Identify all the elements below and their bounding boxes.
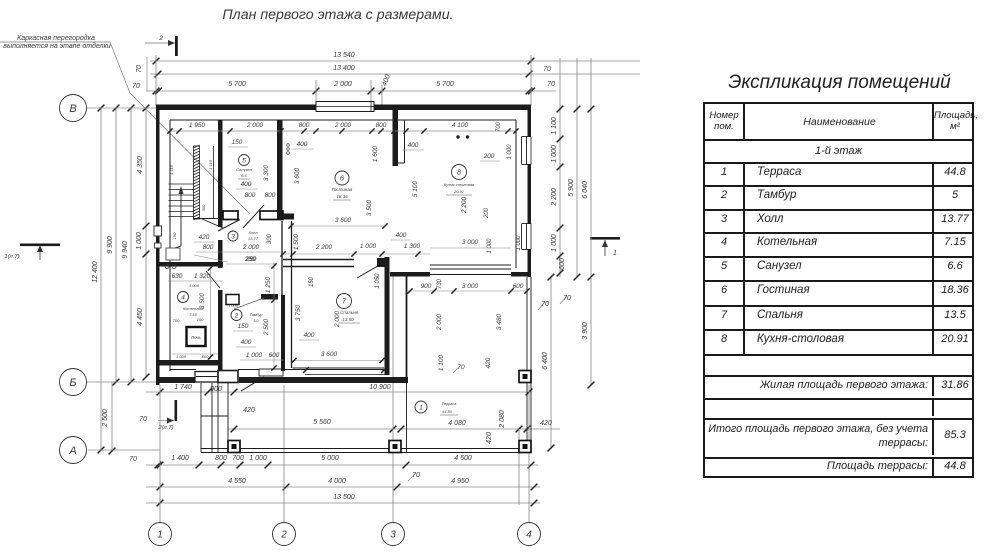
- svg-text:300: 300: [201, 204, 206, 211]
- svg-text:2 000: 2 000: [333, 81, 352, 88]
- svg-text:А: А: [68, 445, 76, 457]
- svg-text:20.91: 20.91: [453, 189, 464, 194]
- svg-text:13 540: 13 540: [333, 52, 355, 59]
- svg-text:2 000: 2 000: [246, 122, 264, 129]
- svg-text:1 000: 1 000: [246, 352, 263, 359]
- svg-text:8: 8: [457, 168, 462, 177]
- svg-text:5 100: 5 100: [412, 180, 419, 197]
- svg-text:4 100: 4 100: [452, 122, 469, 129]
- svg-text:420: 420: [486, 432, 493, 444]
- svg-text:1 250: 1 250: [265, 276, 272, 293]
- svg-text:200: 200: [484, 207, 490, 219]
- svg-text:2: 2: [234, 312, 239, 319]
- svg-text:800: 800: [376, 122, 387, 129]
- svg-text:1 000: 1 000: [551, 234, 558, 252]
- svg-text:1 110: 1 110: [169, 164, 174, 174]
- svg-text:70: 70: [136, 65, 143, 73]
- svg-text:3 000: 3 000: [462, 239, 479, 246]
- svg-text:800: 800: [215, 455, 227, 462]
- svg-text:9 900: 9 900: [107, 236, 114, 254]
- svg-text:1 500: 1 500: [293, 233, 300, 250]
- svg-text:250: 250: [244, 256, 256, 263]
- svg-text:2 200: 2 200: [315, 244, 333, 251]
- svg-text:3 500: 3 500: [366, 199, 373, 216]
- svg-text:2 200: 2 200: [461, 196, 468, 214]
- svg-text:800: 800: [203, 244, 214, 251]
- svg-text:3 000: 3 000: [462, 283, 479, 290]
- svg-text:4: 4: [526, 530, 532, 541]
- svg-text:2 500: 2 500: [102, 409, 109, 428]
- svg-text:Каркасная перегородка: Каркасная перегородка: [17, 34, 95, 42]
- svg-text:1 050: 1 050: [375, 273, 381, 289]
- svg-text:3 600: 3 600: [294, 167, 301, 184]
- svg-text:10 900: 10 900: [369, 384, 391, 391]
- svg-text:4 000: 4 000: [328, 478, 346, 485]
- svg-text:В: В: [69, 103, 76, 115]
- svg-text:Б: Б: [69, 377, 76, 389]
- svg-text:Гостиная: Гостиная: [332, 187, 353, 192]
- svg-text:5 700: 5 700: [228, 81, 246, 88]
- svg-text:70: 70: [547, 81, 555, 88]
- svg-text:2 200: 2 200: [551, 188, 558, 207]
- svg-text:2 000: 2 000: [242, 244, 260, 251]
- svg-text:выполняется на этапе отделки: выполняется на этапе отделки: [3, 42, 111, 50]
- svg-text:420: 420: [243, 407, 255, 414]
- svg-text:2 500: 2 500: [263, 318, 270, 336]
- svg-text:70: 70: [132, 83, 140, 90]
- svg-text:4 500: 4 500: [454, 455, 472, 462]
- svg-text:3 300: 3 300: [263, 164, 270, 181]
- svg-text:13 500: 13 500: [333, 494, 355, 501]
- svg-text:12 400: 12 400: [92, 261, 99, 283]
- svg-text:600: 600: [513, 283, 524, 290]
- svg-text:6 400: 6 400: [542, 352, 549, 370]
- svg-text:4: 4: [181, 294, 185, 301]
- svg-text:3 500: 3 500: [199, 292, 206, 309]
- svg-text:150: 150: [238, 323, 249, 330]
- svg-text:2 000: 2 000: [436, 313, 443, 331]
- svg-text:400: 400: [396, 232, 407, 239]
- svg-text:400: 400: [297, 141, 308, 148]
- svg-text:7: 7: [342, 297, 347, 306]
- svg-text:1 320: 1 320: [194, 273, 211, 280]
- svg-text:1 000: 1 000: [551, 145, 558, 163]
- svg-text:3 480: 3 480: [496, 313, 503, 330]
- svg-text:1 000: 1 000: [507, 144, 513, 160]
- svg-text:18.36: 18.36: [336, 194, 348, 199]
- svg-text:200: 200: [483, 153, 495, 160]
- svg-text:Кухня-столовая: Кухня-столовая: [444, 182, 475, 187]
- svg-text:1 000: 1 000: [136, 232, 143, 250]
- svg-text:800: 800: [202, 354, 209, 359]
- svg-text:2: 2: [280, 530, 287, 541]
- svg-text:420: 420: [485, 357, 492, 368]
- svg-text:1 950: 1 950: [189, 122, 206, 129]
- svg-text:420: 420: [199, 234, 210, 241]
- svg-text:6: 6: [340, 174, 345, 183]
- svg-text:1 100: 1 100: [551, 117, 558, 135]
- svg-text:300: 300: [267, 233, 273, 244]
- svg-text:1 100: 1 100: [438, 354, 445, 371]
- svg-text:630: 630: [172, 273, 183, 280]
- svg-text:5 560: 5 560: [313, 419, 331, 426]
- svg-text:400: 400: [304, 332, 315, 339]
- svg-text:3 600: 3 600: [321, 351, 338, 358]
- svg-text:1 300: 1 300: [404, 243, 421, 250]
- svg-text:150: 150: [172, 232, 177, 239]
- svg-text:Холл: Холл: [247, 230, 258, 235]
- svg-text:2 000: 2 000: [334, 310, 341, 328]
- svg-text:4 080: 4 080: [448, 420, 466, 427]
- svg-text:150: 150: [309, 276, 315, 287]
- svg-text:800: 800: [265, 192, 276, 199]
- svg-text:Санузел: Санузел: [236, 167, 252, 172]
- svg-text:13.77: 13.77: [248, 236, 259, 241]
- svg-text:5: 5: [242, 157, 246, 164]
- svg-text:2 000: 2 000: [334, 122, 352, 129]
- svg-text:13.50: 13.50: [342, 317, 354, 322]
- svg-text:5 900: 5 900: [568, 179, 575, 197]
- svg-text:150: 150: [197, 317, 204, 322]
- svg-text:700: 700: [173, 318, 180, 323]
- svg-text:1 000: 1 000: [249, 455, 267, 462]
- svg-text:Тамбур: Тамбур: [249, 313, 262, 317]
- svg-text:2: 2: [158, 35, 163, 42]
- svg-text:Терраса: Терраса: [442, 402, 457, 406]
- svg-text:420: 420: [540, 420, 552, 427]
- svg-text:4 350: 4 350: [137, 156, 144, 174]
- svg-text:4 550: 4 550: [228, 478, 246, 485]
- svg-text:Спальня: Спальня: [340, 310, 359, 315]
- svg-text:1(л.7): 1(л.7): [4, 254, 19, 260]
- svg-text:1: 1: [613, 250, 617, 257]
- svg-text:13 400: 13 400: [333, 65, 355, 72]
- svg-text:6.6: 6.6: [241, 173, 247, 178]
- svg-text:4 950: 4 950: [451, 478, 469, 485]
- svg-text:9 940: 9 940: [122, 241, 129, 259]
- svg-text:1 600: 1 600: [372, 145, 379, 162]
- svg-text:70: 70: [129, 456, 137, 463]
- svg-text:2 080: 2 080: [499, 410, 506, 429]
- svg-text:1 740: 1 740: [174, 384, 192, 391]
- svg-text:3 900: 3 900: [582, 322, 589, 340]
- svg-text:900: 900: [421, 283, 432, 290]
- svg-text:700: 700: [232, 455, 244, 462]
- svg-text:1 110: 1 110: [208, 159, 213, 169]
- svg-text:3 750: 3 750: [295, 304, 302, 321]
- svg-text:6 040: 6 040: [582, 181, 589, 199]
- svg-text:План первого этажа с размерами: План первого этажа с размерами.: [222, 7, 453, 23]
- svg-text:Печь: Печь: [191, 335, 201, 340]
- svg-text:5.0: 5.0: [253, 319, 259, 323]
- svg-text:1 000: 1 000: [228, 304, 238, 308]
- svg-text:1 000: 1 000: [516, 235, 522, 251]
- svg-text:400: 400: [241, 339, 252, 346]
- svg-text:800: 800: [245, 192, 256, 199]
- svg-text:730: 730: [437, 278, 443, 289]
- svg-text:5 700: 5 700: [436, 81, 454, 88]
- svg-text:1: 1: [157, 530, 163, 541]
- svg-text:1: 1: [419, 404, 423, 411]
- svg-text:3 600: 3 600: [335, 217, 352, 224]
- svg-text:600: 600: [559, 258, 566, 270]
- svg-text:70: 70: [139, 416, 147, 423]
- svg-text:700: 700: [496, 121, 502, 132]
- svg-text:4 450: 4 450: [137, 308, 144, 326]
- svg-text:3: 3: [231, 233, 235, 240]
- svg-text:400: 400: [241, 181, 252, 188]
- svg-text:1 000: 1 000: [176, 354, 187, 359]
- svg-text:1 000: 1 000: [189, 283, 200, 288]
- svg-text:5 000: 5 000: [321, 455, 339, 462]
- svg-text:800: 800: [299, 122, 310, 129]
- svg-text:400: 400: [381, 74, 392, 87]
- svg-text:400: 400: [408, 142, 419, 149]
- svg-text:150: 150: [232, 139, 243, 146]
- svg-text:3: 3: [390, 530, 396, 541]
- svg-text:44.80: 44.80: [442, 410, 452, 414]
- svg-text:1 000: 1 000: [360, 243, 377, 250]
- svg-text:1 400: 1 400: [171, 455, 189, 462]
- svg-text:1 000: 1 000: [487, 238, 493, 254]
- svg-text:70: 70: [543, 66, 551, 73]
